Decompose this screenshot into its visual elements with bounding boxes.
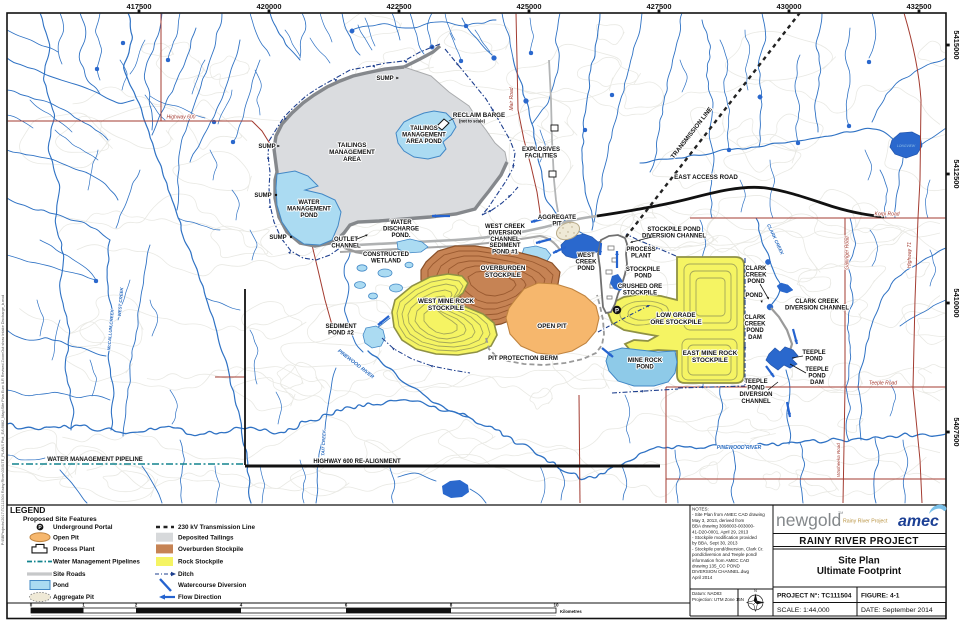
svg-text:CREEK: CREEK [575, 260, 597, 266]
svg-text:P: P [615, 309, 619, 315]
svg-text:CHANNEL: CHANNEL [741, 399, 771, 405]
svg-text:FIGURE: 4-1: FIGURE: 4-1 [861, 593, 900, 600]
svg-text:Overburden Stockpile: Overburden Stockpile [178, 546, 244, 553]
svg-text:PINEWOOD RIVER: PINEWOOD RIVER [717, 445, 762, 451]
svg-text:10: 10 [553, 603, 559, 608]
svg-text:WEST: WEST [577, 253, 595, 259]
svg-text:Projection: UTM Zone 15N: Projection: UTM Zone 15N [692, 597, 744, 602]
svg-text:POND.: POND. [391, 233, 410, 239]
svg-text:Rainy River Project: Rainy River Project [843, 519, 888, 525]
svg-text:Water Management Pipelines: Water Management Pipelines [53, 559, 140, 566]
svg-text:Site Plan: Site Plan [838, 556, 879, 567]
svg-text:Deposited Tailings: Deposited Tailings [178, 534, 234, 541]
svg-text:P:\BBProjects\2017\TC111504 Ra: P:\BBProjects\2017\TC111504 Rainy River\… [1, 295, 5, 546]
svg-text:TEEPLE: TEEPLE [802, 350, 825, 356]
svg-text:2: 2 [135, 603, 138, 608]
svg-text:DIVERSION CHANNEL.dwg: DIVERSION CHANNEL.dwg [692, 569, 750, 574]
svg-text:Kilometres: Kilometres [560, 609, 582, 614]
svg-text:Highway 71: Highway 71 [907, 242, 913, 268]
svg-text:EAST ACCESS ROAD: EAST ACCESS ROAD [674, 174, 738, 181]
svg-text:DATE: September 2014: DATE: September 2014 [861, 607, 933, 614]
svg-text:CLARK CREEK: CLARK CREEK [795, 299, 839, 305]
svg-text:DISCHARGE: DISCHARGE [383, 227, 419, 233]
svg-text:CREEK: CREEK [744, 322, 766, 328]
svg-text:PLANT: PLANT [631, 254, 651, 260]
svg-text:0: 0 [30, 603, 33, 608]
svg-text:POND: POND [577, 266, 595, 272]
svg-text:HIGHWAY 600 RE-ALIGNMENT: HIGHWAY 600 RE-ALIGNMENT [313, 459, 401, 465]
svg-text:drawing 135_CC POND: drawing 135_CC POND [692, 564, 741, 569]
svg-text:MANAGEMENT: MANAGEMENT [329, 149, 375, 156]
svg-text:BBA drawing 3098003-003000-: BBA drawing 3098003-003000- [692, 524, 755, 529]
svg-text:POND: POND [634, 274, 652, 280]
svg-text:230 kV Transmission Line: 230 kV Transmission Line [178, 524, 255, 531]
svg-text:SEDIMENT: SEDIMENT [489, 243, 520, 249]
svg-text:Mair Road: Mair Road [509, 87, 515, 110]
svg-text:LEGEND: LEGEND [10, 505, 45, 515]
svg-text:OPEN PIT: OPEN PIT [537, 323, 567, 330]
svg-text:amec: amec [898, 513, 939, 530]
svg-text:DIVERSION CHANNEL: DIVERSION CHANNEL [785, 306, 849, 312]
svg-text:DIVERSION: DIVERSION [739, 392, 772, 398]
svg-text:Open Pit: Open Pit [53, 534, 80, 541]
svg-text:pond/diversion and Teeple pond: pond/diversion and Teeple pond/ [692, 552, 758, 557]
svg-text:ORE STOCKPILE: ORE STOCKPILE [650, 319, 701, 326]
svg-text:AREA POND: AREA POND [406, 139, 442, 145]
svg-text:OUTLET: OUTLET [334, 237, 358, 243]
svg-text:CLARK: CLARK [746, 266, 768, 272]
svg-text:DAM: DAM [810, 380, 824, 386]
svg-text:POND: POND [747, 386, 765, 392]
svg-text:TM: TM [838, 511, 843, 515]
svg-text:EXPLOSIVES: EXPLOSIVES [522, 147, 560, 153]
svg-text:POND: POND [300, 213, 318, 219]
svg-text:SUMP: SUMP [269, 235, 286, 241]
svg-text:SUMP: SUMP [254, 193, 271, 199]
svg-text:TAILINGS: TAILINGS [410, 126, 438, 132]
svg-text:TEEPLE: TEEPLE [805, 367, 828, 373]
svg-text:DIVERSION CHANNEL: DIVERSION CHANNEL [642, 234, 706, 240]
svg-text:RAINY RIVER PROJECT: RAINY RIVER PROJECT [799, 536, 919, 547]
svg-text:Aggregate Pit: Aggregate Pit [53, 594, 95, 601]
svg-text:TEEPLE: TEEPLE [744, 379, 767, 385]
svg-text:POND: POND [636, 365, 654, 371]
svg-text:Gallinger Road: Gallinger Road [845, 236, 851, 270]
svg-text:Washeeka Road: Washeeka Road [836, 443, 841, 477]
svg-text:Watercourse Diversion: Watercourse Diversion [178, 582, 247, 589]
svg-text:LONGVIEW: LONGVIEW [897, 144, 916, 148]
svg-text:AREA: AREA [343, 156, 361, 163]
svg-text:1: 1 [82, 603, 85, 608]
svg-text:Datum: NAD83: Datum: NAD83 [692, 591, 722, 596]
svg-text:STOCKPILE: STOCKPILE [623, 291, 657, 297]
svg-text:EAST MINE ROCK: EAST MINE ROCK [683, 350, 738, 357]
svg-text:WATER MANAGEMENT PIPELINE: WATER MANAGEMENT PIPELINE [47, 457, 143, 463]
svg-text:STOCKPILE: STOCKPILE [692, 357, 728, 364]
svg-text:Pond: Pond [53, 582, 69, 589]
svg-text:MINE ROCK: MINE ROCK [628, 358, 663, 364]
svg-text:Rock Stockpile: Rock Stockpile [178, 559, 224, 566]
svg-text:DIVERSION: DIVERSION [488, 231, 521, 237]
svg-text:April 2014: April 2014 [692, 575, 713, 580]
svg-text:POND: POND [747, 279, 765, 285]
svg-text:Proposed Site Features: Proposed Site Features [23, 516, 97, 523]
svg-text:LOW GRADE: LOW GRADE [656, 312, 695, 319]
svg-text:5407500: 5407500 [952, 417, 960, 446]
svg-text:newgold: newgold [776, 510, 841, 530]
svg-text:FACILITIES: FACILITIES [525, 154, 557, 160]
svg-text:41-D20-0001, April 29, 2013: 41-D20-0001, April 29, 2013 [692, 529, 749, 534]
svg-text:TAILINGS: TAILINGS [338, 142, 367, 149]
svg-text:SCALE: 1:44,000: SCALE: 1:44,000 [777, 607, 830, 614]
svg-text:SUMP: SUMP [258, 144, 275, 150]
svg-text:information from AMEC CAD: information from AMEC CAD [692, 558, 750, 563]
svg-text:- Site Plan from AMEC CAD draw: - Site Plan from AMEC CAD drawing [692, 512, 765, 517]
svg-text:CHANNEL: CHANNEL [331, 244, 361, 250]
svg-text:AGGREGATE: AGGREGATE [538, 215, 576, 221]
svg-text:NOTES:: NOTES: [692, 507, 709, 512]
svg-text:5412500: 5412500 [952, 159, 960, 188]
svg-text:PIT PROTECTION BERM: PIT PROTECTION BERM [488, 356, 558, 362]
svg-text:POND: POND [808, 374, 826, 380]
svg-text:Ultimate Footprint: Ultimate Footprint [817, 566, 902, 577]
svg-text:WETLAND: WETLAND [371, 259, 402, 265]
svg-text:6: 6 [345, 603, 348, 608]
svg-text:(not to scale): (not to scale) [459, 119, 486, 124]
svg-text:POND #1: POND #1 [492, 250, 518, 256]
svg-text:Flow Direction: Flow Direction [178, 594, 222, 601]
svg-text:by BBA, Sept 30, 2013: by BBA, Sept 30, 2013 [692, 541, 738, 546]
svg-text:8: 8 [450, 603, 453, 608]
svg-text:POND: POND [805, 357, 823, 363]
svg-text:Underground Portal: Underground Portal [53, 524, 113, 531]
svg-text:POND #2: POND #2 [328, 331, 354, 337]
svg-text:Highway 600: Highway 600 [167, 115, 196, 121]
svg-text:Process Plant: Process Plant [53, 546, 96, 553]
svg-text:MANAGEMENT: MANAGEMENT [402, 133, 446, 139]
svg-text:DAM: DAM [748, 335, 762, 341]
svg-text:STOCKPILE: STOCKPILE [428, 305, 464, 312]
svg-text:OVERBURDEN: OVERBURDEN [481, 265, 526, 272]
svg-text:May 3, 2013, derived from: May 3, 2013, derived from [692, 518, 745, 523]
svg-text:PROCESS: PROCESS [626, 247, 655, 253]
svg-text:SEDIMENT: SEDIMENT [325, 324, 356, 330]
svg-text:5410000: 5410000 [952, 288, 960, 317]
svg-text:WATER: WATER [390, 220, 412, 226]
svg-text:STOCKPILE: STOCKPILE [485, 272, 521, 279]
svg-text:5415000: 5415000 [952, 30, 960, 59]
svg-text:Ditch: Ditch [178, 571, 194, 578]
svg-text:PIT: PIT [552, 222, 562, 228]
svg-text:Korpi Road: Korpi Road [874, 212, 899, 218]
svg-text:- Stockpile pond/diversion, Cl: - Stockpile pond/diversion, Clark Cr. [692, 546, 764, 551]
svg-text:CONSTRUCTED: CONSTRUCTED [363, 252, 410, 258]
svg-text:POND: POND [745, 293, 763, 299]
svg-text:Teeple Road: Teeple Road [869, 381, 897, 387]
svg-text:STOCKPILE POND: STOCKPILE POND [647, 227, 701, 233]
svg-text:Site Roads: Site Roads [53, 571, 86, 578]
svg-text:PROJECT N°: TC111504: PROJECT N°: TC111504 [777, 592, 852, 600]
svg-text:CLARK: CLARK [745, 315, 767, 321]
svg-text:WEST CREEK: WEST CREEK [485, 224, 526, 230]
svg-text:MANAGEMENT: MANAGEMENT [287, 207, 331, 213]
svg-text:CREEK: CREEK [745, 273, 767, 279]
svg-text:WEST MINE ROCK: WEST MINE ROCK [418, 298, 474, 305]
svg-text:CRUSHED ORE: CRUSHED ORE [618, 284, 662, 290]
svg-text:4: 4 [240, 603, 243, 608]
svg-text:- Stockpile modification provi: - Stockpile modification provided [692, 535, 757, 540]
svg-text:WATER: WATER [298, 200, 320, 206]
svg-text:SUMP: SUMP [376, 76, 393, 82]
svg-text:POND: POND [746, 328, 764, 334]
svg-text:STOCKPILE: STOCKPILE [626, 267, 660, 273]
